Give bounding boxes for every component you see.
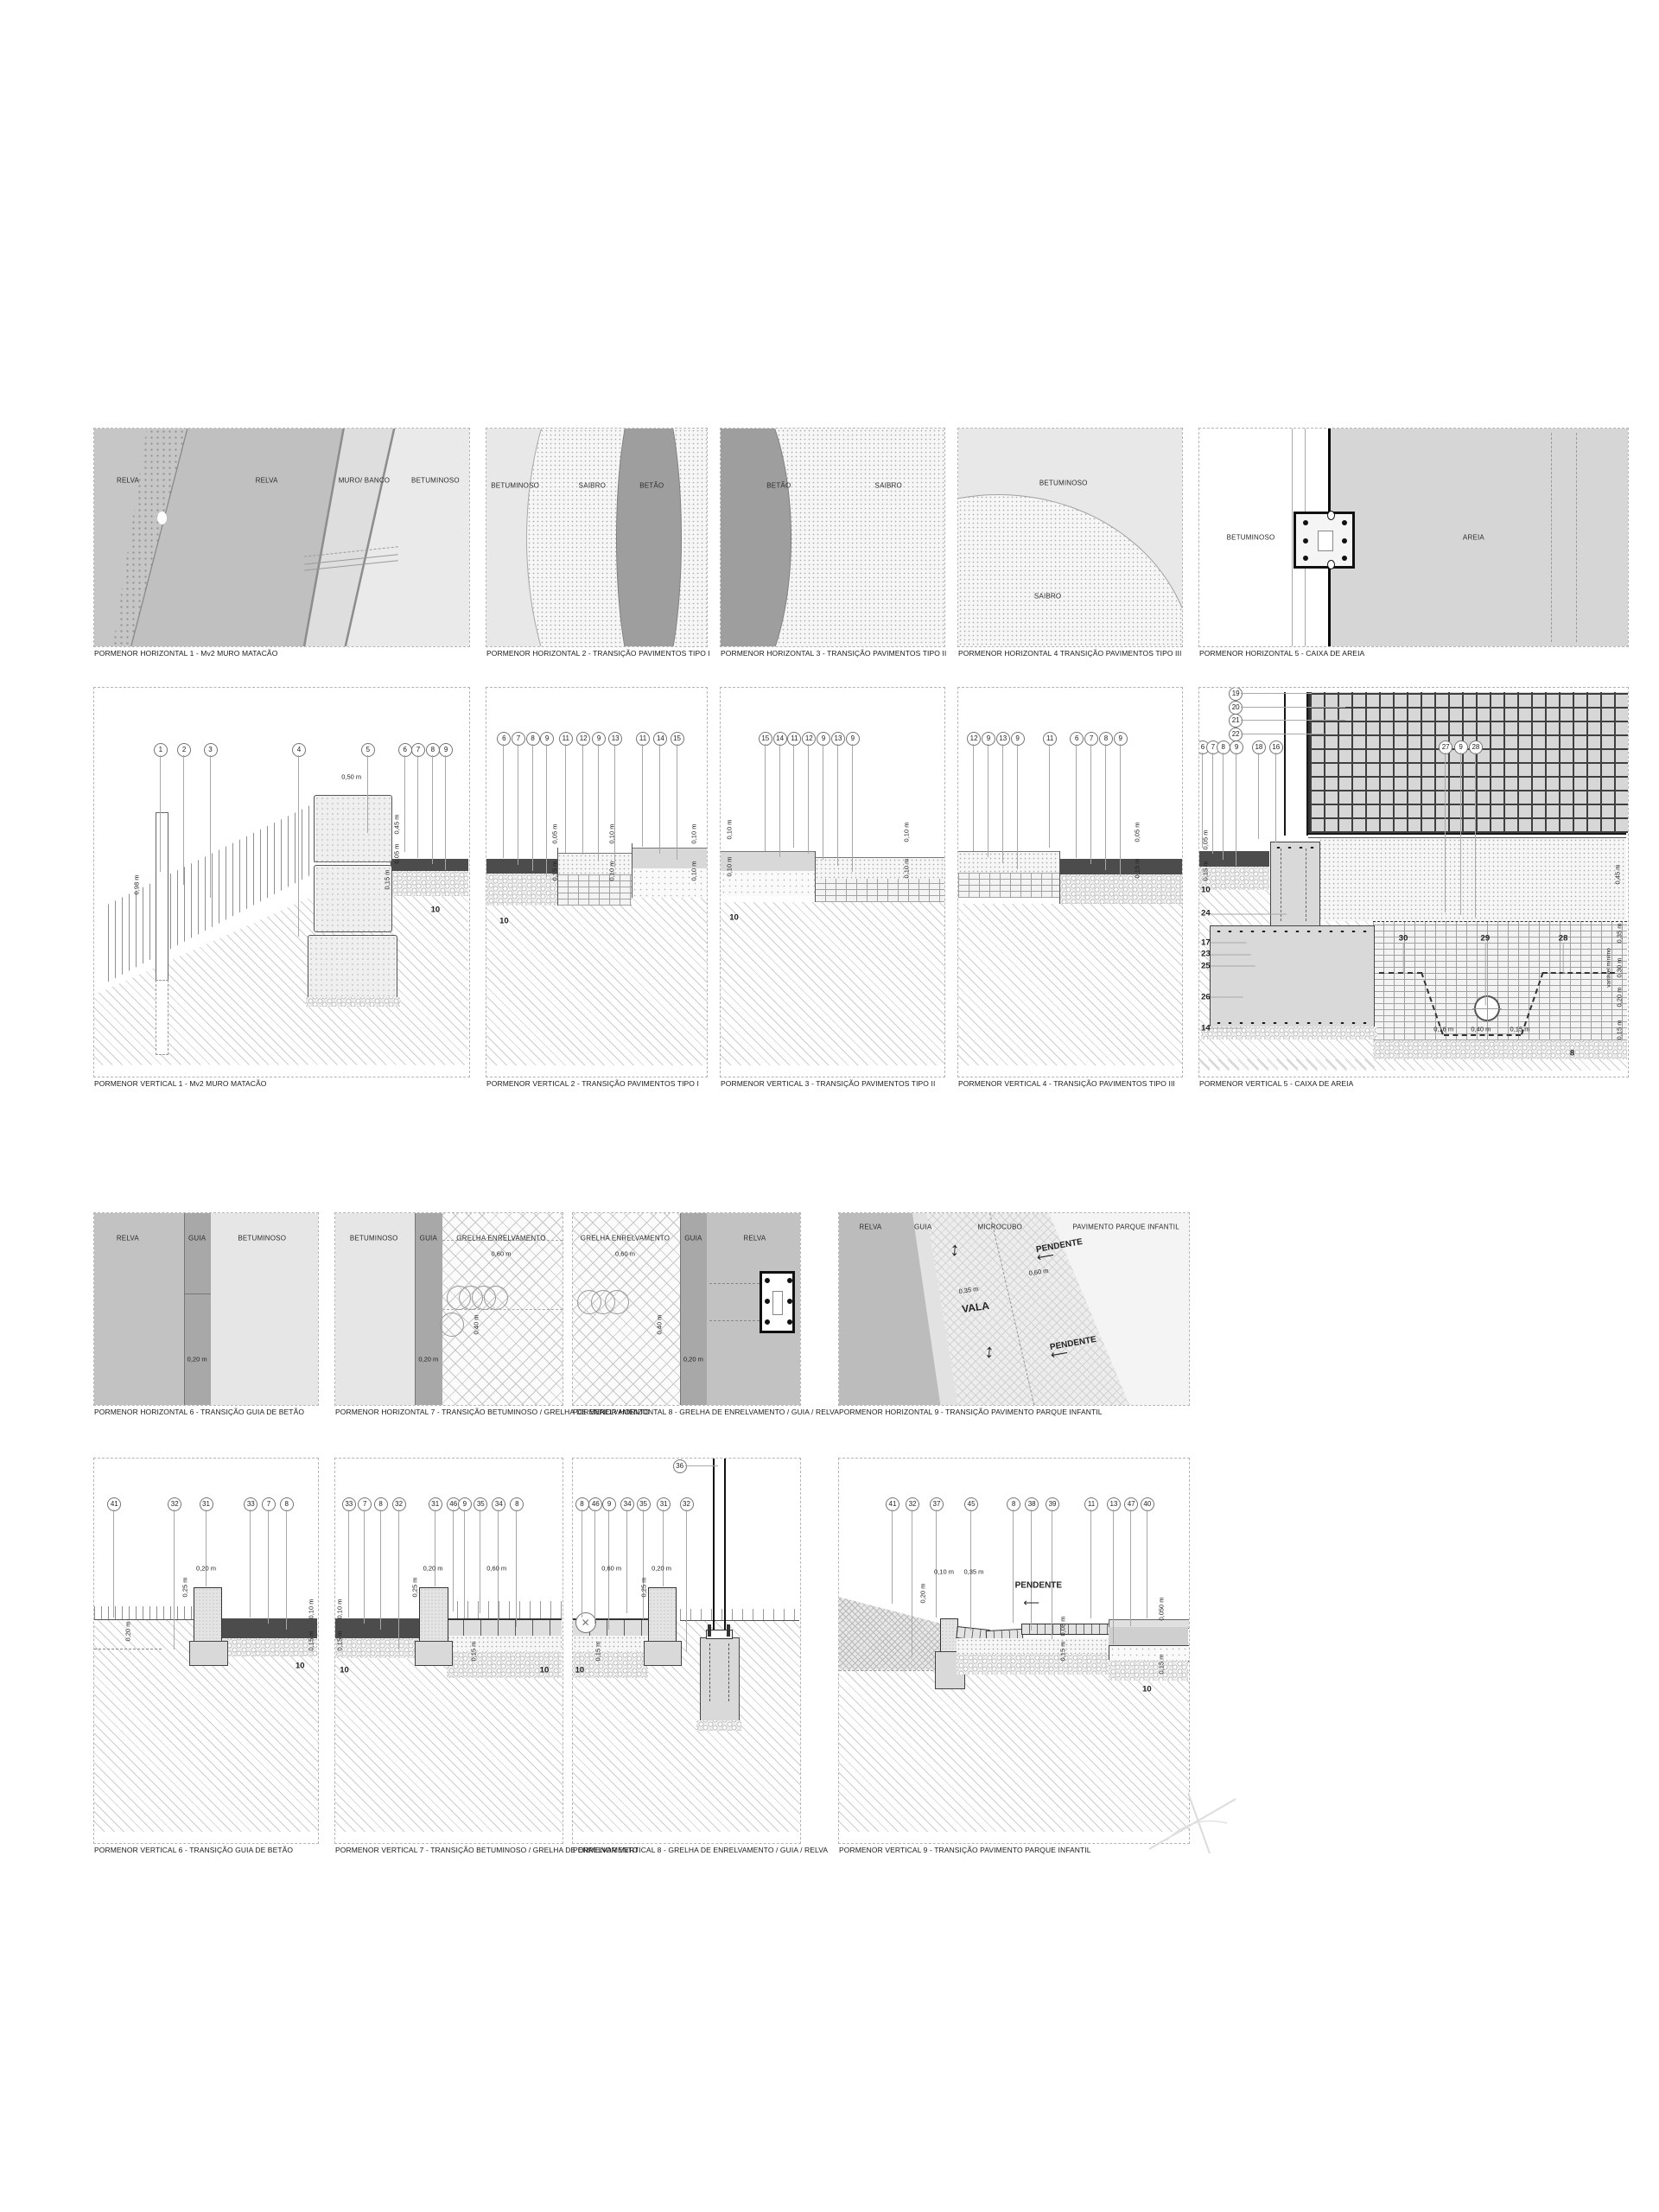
dim: 0,25 m [639,1578,647,1598]
callout-15: 15 [759,732,772,746]
callout-7: 7 [1206,741,1220,754]
callout-8: 8 [374,1497,388,1511]
callout-12: 12 [802,732,816,746]
callout-39: 39 [1046,1497,1059,1511]
joint-line [815,851,816,902]
kerb-foundation [644,1641,682,1666]
joint-line [557,848,558,906]
callout-12: 12 [967,732,981,746]
compass-watermark [1141,1789,1244,1858]
callout-15: 15 [671,732,684,746]
post-line-right [724,1459,726,1630]
bolt [1303,538,1308,543]
callout-9: 9 [592,732,606,746]
section-drawing: 4132313378 0,20 m0,25 m0,20 m0,10 m0,15 … [94,1459,318,1843]
ground-hatch [958,904,1182,1065]
ground-hatch [486,898,707,1065]
callout-2: 2 [177,743,191,757]
layer-base-brick [557,874,632,906]
layer-base-dots [721,871,815,896]
bolt [787,1319,792,1325]
rebar-dots [1213,928,1370,934]
trench-dash-bottom [1444,1034,1521,1036]
callout-14: 14 [653,732,667,746]
bolt [1342,520,1347,525]
layer-betuminoso [335,1618,419,1638]
joint-line [1059,851,1060,904]
layer-gravel [573,1651,648,1678]
callout-1: 1 [154,743,168,757]
layer-pavement [632,848,707,870]
post-footing [700,1637,739,1722]
panel-vertical-6: 4132313378 0,20 m0,25 m0,20 m0,10 m0,15 … [93,1458,319,1844]
callout-32: 32 [392,1497,406,1511]
dim: 0,35 m [963,1568,983,1576]
relva-base-dash [839,1670,942,1671]
callout-22: 22 [1229,728,1243,741]
panel-caption: PORMENOR HORIZONTAL 6 - TRANSIÇÃO GUIA D… [94,1408,304,1416]
concrete-footing [1210,925,1374,1028]
callout-9: 9 [1011,732,1025,746]
layer-gravel [957,1654,1116,1675]
callout-33: 33 [244,1497,257,1511]
callout-38: 38 [1025,1497,1039,1511]
layer-base-brick [815,879,944,902]
panel-caption: PORMENOR HORIZONTAL 1 - Mv2 MURO MATACÃO [94,649,277,658]
plan-drawing: BETÃOSAIBRO [721,429,944,646]
lbl: BETUMINOSO [1227,534,1275,542]
panel-horizontal-5: BETUMINOSOAREIA PORMENOR HORIZONTAL 5 - … [1198,428,1629,647]
ground-hatch [721,902,944,1065]
callout-13: 13 [996,732,1010,746]
dim: 0,10 m [690,823,697,843]
txt: PENDENTE [1015,1580,1062,1590]
fence-bottom-rail [1308,833,1627,835]
dim: 0,20 m [196,1564,216,1572]
dim: 0,10 m [902,822,910,842]
panel-caption: PORMENOR HORIZONTAL 2 - TRANSIÇÃO PAVIME… [486,649,710,658]
panel-horizontal-3: BETÃOSAIBRO PORMENOR HORIZONTAL 3 - TRAN… [720,428,945,647]
layer-gravel [486,874,557,906]
dim: 0,25 m [411,1578,419,1598]
callout-13: 13 [608,732,622,746]
band-guia [680,1213,709,1405]
layer-saibro [557,853,632,875]
dim: 0,20 m [652,1564,671,1572]
stake-post-buried [156,980,168,1056]
layer-gravel [1059,874,1182,904]
footing-gravel-pad [696,1720,741,1731]
section-drawing: 129139116789 0,05 m0,15 m [958,688,1182,1077]
footing-gravel-pad [1201,1027,1376,1039]
panel-caption: PORMENOR VERTICAL 1 - Mv2 MURO MATACÃO [94,1079,266,1088]
callout-8: 8 [526,732,540,746]
bolt [1303,556,1308,561]
band-guia [415,1213,444,1405]
callout-45: 45 [964,1497,978,1511]
bolt [1303,520,1308,525]
callout-8: 8 [575,1497,589,1511]
callout-13: 13 [1107,1497,1121,1511]
panel-caption: PORMENOR VERTICAL 2 - TRANSIÇÃO PAVIMENT… [486,1079,699,1088]
post-baseplate [1294,512,1354,569]
ground-hatch-bottom [1199,1059,1627,1071]
callout-32: 32 [906,1497,919,1511]
pipe-cross-h [1472,1008,1502,1009]
dim: 0,45 m [392,814,400,834]
dim: 0,60 m [601,1564,621,1572]
callout-9: 9 [846,732,860,746]
band-areia [1331,429,1628,646]
panel-horizontal-4: BETUMINOSOSAIBRO PORMENOR HORIZONTAL 4 T… [957,428,1183,647]
callout-31: 31 [429,1497,442,1511]
panel-horizontal-1: RELVARELVAMURO/ BANCOBETUMINOSO PORMENOR… [93,428,470,647]
callout-9: 9 [540,732,554,746]
callout-18: 18 [1252,741,1266,754]
kerb-foundation [189,1641,228,1666]
callout-31: 31 [200,1497,213,1511]
layer-betuminoso [1059,859,1182,874]
sand-fill [1319,838,1627,921]
callout-35: 35 [474,1497,487,1511]
bolt [1342,538,1347,543]
callout-20: 20 [1229,701,1243,715]
stake-post [156,812,168,982]
bolt [787,1278,792,1283]
dim: 0,10 m [608,823,616,843]
section-drawing: 192021226789181627928 0,05 m0,15 m0,45 m… [1199,688,1628,1077]
panel-horizontal-2: BETUMINOSOSAIBROBETÃO PORMENOR HORIZONTA… [486,428,708,647]
callout-6: 6 [1070,732,1084,746]
anchor-bolt [708,1624,711,1637]
callout-11: 11 [559,732,573,746]
plate-leader-dash-2 [709,1320,760,1321]
callout-41: 41 [107,1497,121,1511]
callout-46: 46 [588,1497,602,1511]
kerb-foundation [415,1641,453,1666]
plan-drawing: RELVAGUIAMICROCUBOPAVIMENTO PARQUE INFAN… [839,1213,1189,1405]
callout-11: 11 [787,732,801,746]
dim: 0,05 m [1134,822,1141,842]
layer-betao-hatch [1109,1627,1188,1646]
bolt [787,1299,792,1304]
callout-9: 9 [1114,732,1128,746]
dim: 0,50 m [341,773,361,781]
callout-12: 12 [576,732,590,746]
callout-32: 32 [680,1497,694,1511]
callout-13: 13 [831,732,845,746]
dim: 0,05 m [1202,829,1210,849]
plan-drawing: BETUMINOSOSAIBRO [958,429,1182,646]
callout-32: 32 [168,1497,181,1511]
edge-line-1 [1292,429,1293,646]
grelha-bedding [447,1636,562,1651]
dim: 0,10 m [726,820,734,840]
callout-37: 37 [930,1497,944,1511]
fence-mesh [1308,692,1628,833]
anchor-bolt [727,1624,730,1637]
panel-caption: PORMENOR HORIZONTAL 3 - TRANSIÇÃO PAVIME… [721,649,946,658]
callout-8: 8 [1217,741,1230,754]
dim: 0,10 m [336,1599,344,1618]
panel-caption: PORMENOR HORIZONTAL 5 - CAIXA DE AREIA [1199,649,1364,658]
callout-8: 8 [1099,732,1113,746]
layer-saibro [958,851,1059,874]
layer-base-dots [632,868,707,898]
callout-7: 7 [1084,732,1098,746]
dim: 0,05 m [551,823,559,843]
layer-gravel [220,1638,317,1656]
panel-caption: PORMENOR HORIZONTAL 8 - GRELHA DE ENRELV… [573,1408,839,1416]
anchor-dashed [728,1643,729,1701]
grelha-section-symbol: ✕ [575,1612,596,1633]
section-drawing: 123456789 0,98 m0,50 m0,45 m0,05 m0,15 m… [94,688,469,1077]
stone-block-2 [314,865,392,933]
callout-7: 7 [411,743,425,757]
dim: 0,10 m [308,1599,315,1618]
band-betao [721,429,791,646]
drain-pipe [1474,995,1500,1021]
panel-vertical-5: 192021226789181627928 0,05 m0,15 m0,45 m… [1198,687,1629,1077]
callout-46: 46 [447,1497,461,1511]
kerb-guia [419,1587,448,1643]
panel-vertical-1: 123456789 0,98 m0,50 m0,45 m0,05 m0,15 m… [93,687,470,1077]
bolt [765,1278,770,1283]
callout-11: 11 [1084,1497,1098,1511]
layer-saibro [815,857,944,880]
trench-gravel-bed [1373,1040,1627,1059]
callout-8: 8 [426,743,440,757]
callout-34: 34 [492,1497,505,1511]
panel-vertical-7: 3378323146935348 0,20 m0,60 m0,25 m0,10 … [334,1458,563,1844]
grass-ticks [680,1609,800,1620]
callout-4: 4 [292,743,306,757]
panel-vertical-3: 151411129139 0,10 m0,10 m0,10 m0,10 m 10… [720,687,945,1077]
topsoil-dash [94,1649,162,1649]
callout-14: 14 [773,732,787,746]
panel-horizontal-9: RELVAGUIAMICROCUBOPAVIMENTO PARQUE INFAN… [838,1212,1190,1406]
bolt [1342,556,1347,561]
dim: 0,25 m [181,1578,188,1598]
layer-gravel [1199,867,1269,890]
layer-gravel-right [1109,1660,1188,1681]
section-drawing: 3378323146935348 0,20 m0,60 m0,25 m0,10 … [335,1459,563,1843]
callout-36: 36 [673,1459,687,1473]
band-betao [616,429,682,646]
callout-11: 11 [636,732,650,746]
dim: 0,050 m [1157,1597,1165,1620]
rebar-dots [1213,1020,1370,1026]
kerb-guia [194,1587,222,1643]
grass-ticks [94,1606,194,1619]
band-betuminoso [335,1213,415,1405]
bedding-saibro [957,1638,1110,1654]
grass-blades [447,1601,562,1618]
trench-backfill [1373,921,1627,1040]
callout-34: 34 [620,1497,634,1511]
panel-caption: PORMENOR VERTICAL 6 - TRANSIÇÃO GUIA DE … [94,1846,293,1854]
layer-pavement [721,851,815,872]
trench-dash-top-left [1379,972,1422,974]
panel-caption: PORMENOR VERTICAL 3 - TRANSIÇÃO PAVIMENT… [721,1079,935,1088]
sand-base-line [1373,921,1627,922]
callout-19: 19 [1229,688,1243,701]
anchor-dashed [1281,849,1281,920]
block-bedding-gravel [306,997,400,1007]
callout-11: 11 [1043,732,1057,746]
anchor-dashed [1306,849,1306,920]
dim: 0,10 m [934,1568,954,1576]
callout-6: 6 [497,732,511,746]
callout-8: 8 [280,1497,294,1511]
panel-caption: PORMENOR HORIZONTAL 4 TRANSIÇÃO PAVIMENT… [958,649,1181,658]
dim: 0,20 m [919,1583,927,1603]
bolt [765,1299,770,1304]
panel-vertical-9: 413237458383911134740 0,10 m0,35 m0,20 m… [838,1458,1190,1844]
plan-drawing: RELVARELVAMURO/ BANCOBETUMINOSO [94,429,469,646]
dim: 0,20 m [423,1564,443,1572]
grelha-bedding [573,1636,648,1651]
callout-6: 6 [398,743,412,757]
stone-block-1 [314,795,392,863]
callout-3: 3 [204,743,218,757]
post-line-left [713,1459,715,1630]
guia-joint [184,1294,211,1294]
block-joint-dashed [314,861,391,862]
axis-bolt-bottom [1327,560,1335,569]
panel-vertical-4: 129139116789 0,05 m0,15 m PORMENOR VERTI… [957,687,1183,1077]
layer-base-brick [958,873,1059,898]
grelha-dash-1 [442,1240,563,1241]
band-guia [184,1213,213,1405]
plan-drawing: RELVAGUIABETUMINOSO 0,20 m [94,1213,318,1405]
callout-9: 9 [439,743,453,757]
section-drawing: 67891112913111415 0,05 m0,15 m0,10 m0,10… [486,688,707,1077]
callout-7: 7 [358,1497,372,1511]
kerb-guia [648,1587,677,1643]
callout-9: 9 [817,732,830,746]
callout-8: 8 [510,1497,524,1511]
panel-vertical-2: 67891112913111415 0,05 m0,15 m0,10 m0,10… [486,687,708,1077]
panel-caption: PORMENOR VERTICAL 9 - TRANSIÇÃO PAVIMENT… [839,1846,1091,1854]
callout-7: 7 [262,1497,276,1511]
panel-caption: PORMENOR VERTICAL 4 - TRANSIÇÃO PAVIMENT… [958,1079,1175,1088]
post-section [772,1291,783,1316]
plan-drawing: BETUMINOSOAREIA [1199,429,1628,646]
layer-betuminoso [220,1618,317,1638]
post-baseplate [760,1271,796,1334]
panel-horizontal-8: GRELHA ENRELVAMENTOGUIARELVA 0,60 m0,40 … [572,1212,801,1406]
panel-horizontal-7: BETUMINOSOGUIAGRELHA ENRELVAMENTO 0,60 m… [334,1212,563,1406]
callout-31: 31 [657,1497,671,1511]
callout-6: 6 [1199,741,1210,754]
callout-9: 9 [602,1497,616,1511]
grass-surface-line [94,1619,194,1620]
panel-caption: PORMENOR VERTICAL 8 - GRELHA DE ENRELVAM… [573,1846,828,1854]
plan-drawing: BETUMINOSOSAIBROBETÃO [486,429,707,646]
stone-block-3 [308,935,397,999]
layer-betuminoso [486,859,557,874]
band-relva [94,1213,184,1405]
panel-horizontal-6: RELVAGUIABETUMINOSO 0,20 m PORMENOR HORI… [93,1212,319,1406]
plan-drawing: GRELHA ENRELVAMENTOGUIARELVA 0,60 m0,40 … [573,1213,800,1405]
layer-betuminoso [1199,851,1269,867]
bolt [765,1319,770,1325]
callout-21: 21 [1229,714,1243,728]
callout-9: 9 [458,1497,472,1511]
callout-47: 47 [1124,1497,1138,1511]
callout-40: 40 [1141,1497,1154,1511]
grass-surface-line [680,1620,800,1621]
callout-35: 35 [637,1497,651,1511]
callout-7: 7 [512,732,525,746]
anchor-dashed [709,1643,710,1701]
axis-bolt-top [1327,511,1335,520]
concrete-upstand [1270,842,1320,927]
trench-dash-top-right [1542,972,1615,974]
panel-vertical-8: ✕ 36846934353132 0,60 m0,20 m0,25 m0,15 … [572,1458,801,1844]
callout-8: 8 [1007,1497,1020,1511]
planting-circle [605,1290,629,1314]
layer-gravel-right [447,1651,562,1678]
stone-marker [157,512,167,524]
dashed-line-1 [1551,433,1552,642]
fence-post [1284,692,1308,836]
joint-line [632,843,632,898]
txt: ⟵ [1023,1596,1039,1610]
callout-9: 9 [982,732,995,746]
layer-gravel [391,871,468,895]
plan-drawing: BETUMINOSOGUIAGRELHA ENRELVAMENTO 0,60 m… [335,1213,563,1405]
section-drawing: 151411129139 0,10 m0,10 m0,10 m0,10 m 10 [721,688,944,1077]
callout-33: 33 [342,1497,356,1511]
drawing-sheet: RELVARELVAMURO/ BANCOBETUMINOSO PORMENOR… [0,0,1659,2212]
post-section [1318,531,1334,551]
plate-leader-dash-1 [709,1283,760,1284]
callout-9: 9 [1230,741,1243,754]
callout-41: 41 [886,1497,899,1511]
dashed-line-2 [1576,433,1577,642]
panel-caption: PORMENOR VERTICAL 5 - CAIXA DE AREIA [1199,1079,1353,1088]
section-drawing: ✕ 36846934353132 0,60 m0,20 m0,25 m0,15 … [573,1459,800,1843]
layer-gravel [335,1638,419,1659]
microcube-row [1021,1624,1112,1636]
rebar-dots [1273,844,1318,849]
band-betuminoso [211,1213,318,1405]
layer-betuminoso [391,859,468,871]
callout-5: 5 [361,743,375,757]
callout-16: 16 [1269,741,1283,754]
panel-caption: PORMENOR HORIZONTAL 9 - TRANSIÇÃO PAVIME… [839,1408,1103,1416]
section-drawing: 413237458383911134740 0,10 m0,35 m0,20 m… [839,1459,1189,1843]
dim: 0,60 m [486,1564,506,1572]
